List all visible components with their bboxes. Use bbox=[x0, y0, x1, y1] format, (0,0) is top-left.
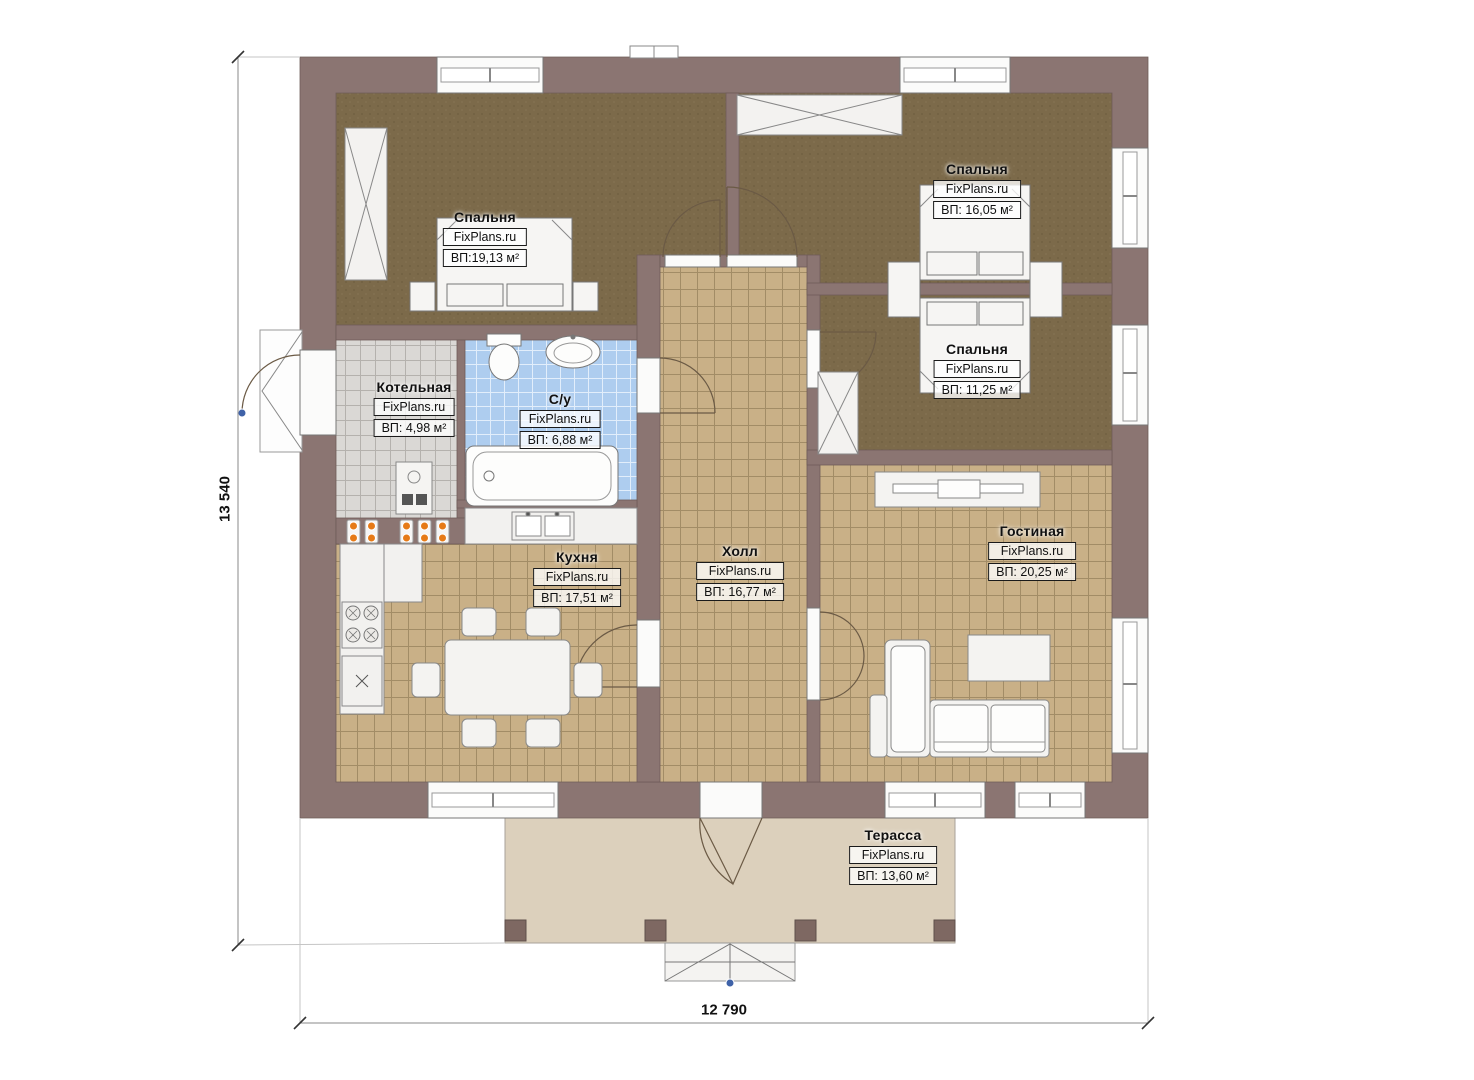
room-brand: FixPlans.ru bbox=[533, 568, 621, 586]
room-area: ВП: 17,51 м² bbox=[533, 589, 621, 607]
room-area: ВП: 16,77 м² bbox=[696, 583, 784, 601]
room-label-hall: Холл FixPlans.ru ВП: 16,77 м² bbox=[696, 543, 784, 601]
room-label-living: Гостиная FixPlans.ru ВП: 20,25 м² bbox=[988, 523, 1076, 581]
room-brand: FixPlans.ru bbox=[934, 360, 1021, 378]
room-area: ВП: 16,05 м² bbox=[933, 201, 1021, 219]
room-label-bedroom-2: Спальня FixPlans.ru ВП: 16,05 м² bbox=[933, 161, 1021, 219]
room-name: Холл bbox=[696, 543, 784, 559]
room-name: Кухня bbox=[533, 549, 621, 565]
dimension-width-label: 12 790 bbox=[701, 1002, 747, 1019]
room-brand: FixPlans.ru bbox=[520, 410, 601, 428]
room-brand: FixPlans.ru bbox=[696, 562, 784, 580]
room-brand: FixPlans.ru bbox=[933, 180, 1021, 198]
room-area: ВП: 11,25 м² bbox=[934, 381, 1021, 399]
room-area: ВП:19,13 м² bbox=[443, 249, 527, 267]
room-brand: FixPlans.ru bbox=[849, 846, 937, 864]
room-name: Терасса bbox=[849, 827, 937, 843]
dimension-height-label: 13 540 bbox=[217, 476, 234, 522]
room-label-boiler: Котельная FixPlans.ru ВП: 4,98 м² bbox=[374, 379, 455, 437]
room-brand: FixPlans.ru bbox=[374, 398, 455, 416]
room-label-kitchen: Кухня FixPlans.ru ВП: 17,51 м² bbox=[533, 549, 621, 607]
floor-plan-drawing bbox=[0, 0, 1474, 1080]
room-name: Спальня bbox=[934, 341, 1021, 357]
room-brand: FixPlans.ru bbox=[443, 228, 527, 246]
floor-plan: Спальня FixPlans.ru ВП:19,13 м² Спальня … bbox=[0, 0, 1474, 1080]
room-name: Спальня bbox=[933, 161, 1021, 177]
room-area: ВП: 6,88 м² bbox=[520, 431, 601, 449]
room-label-terrace: Терасса FixPlans.ru ВП: 13,60 м² bbox=[849, 827, 937, 885]
room-area: ВП: 20,25 м² bbox=[988, 563, 1076, 581]
room-area: ВП: 13,60 м² bbox=[849, 867, 937, 885]
room-label-bedroom-3: Спальня FixPlans.ru ВП: 11,25 м² bbox=[934, 341, 1021, 399]
room-name: Котельная bbox=[374, 379, 455, 395]
room-name: С/у bbox=[520, 391, 601, 407]
room-name: Гостиная bbox=[988, 523, 1076, 539]
room-brand: FixPlans.ru bbox=[988, 542, 1076, 560]
room-name: Спальня bbox=[443, 209, 527, 225]
room-area: ВП: 4,98 м² bbox=[374, 419, 455, 437]
room-label-bedroom-1: Спальня FixPlans.ru ВП:19,13 м² bbox=[443, 209, 527, 267]
room-label-bathroom: С/у FixPlans.ru ВП: 6,88 м² bbox=[520, 391, 601, 449]
